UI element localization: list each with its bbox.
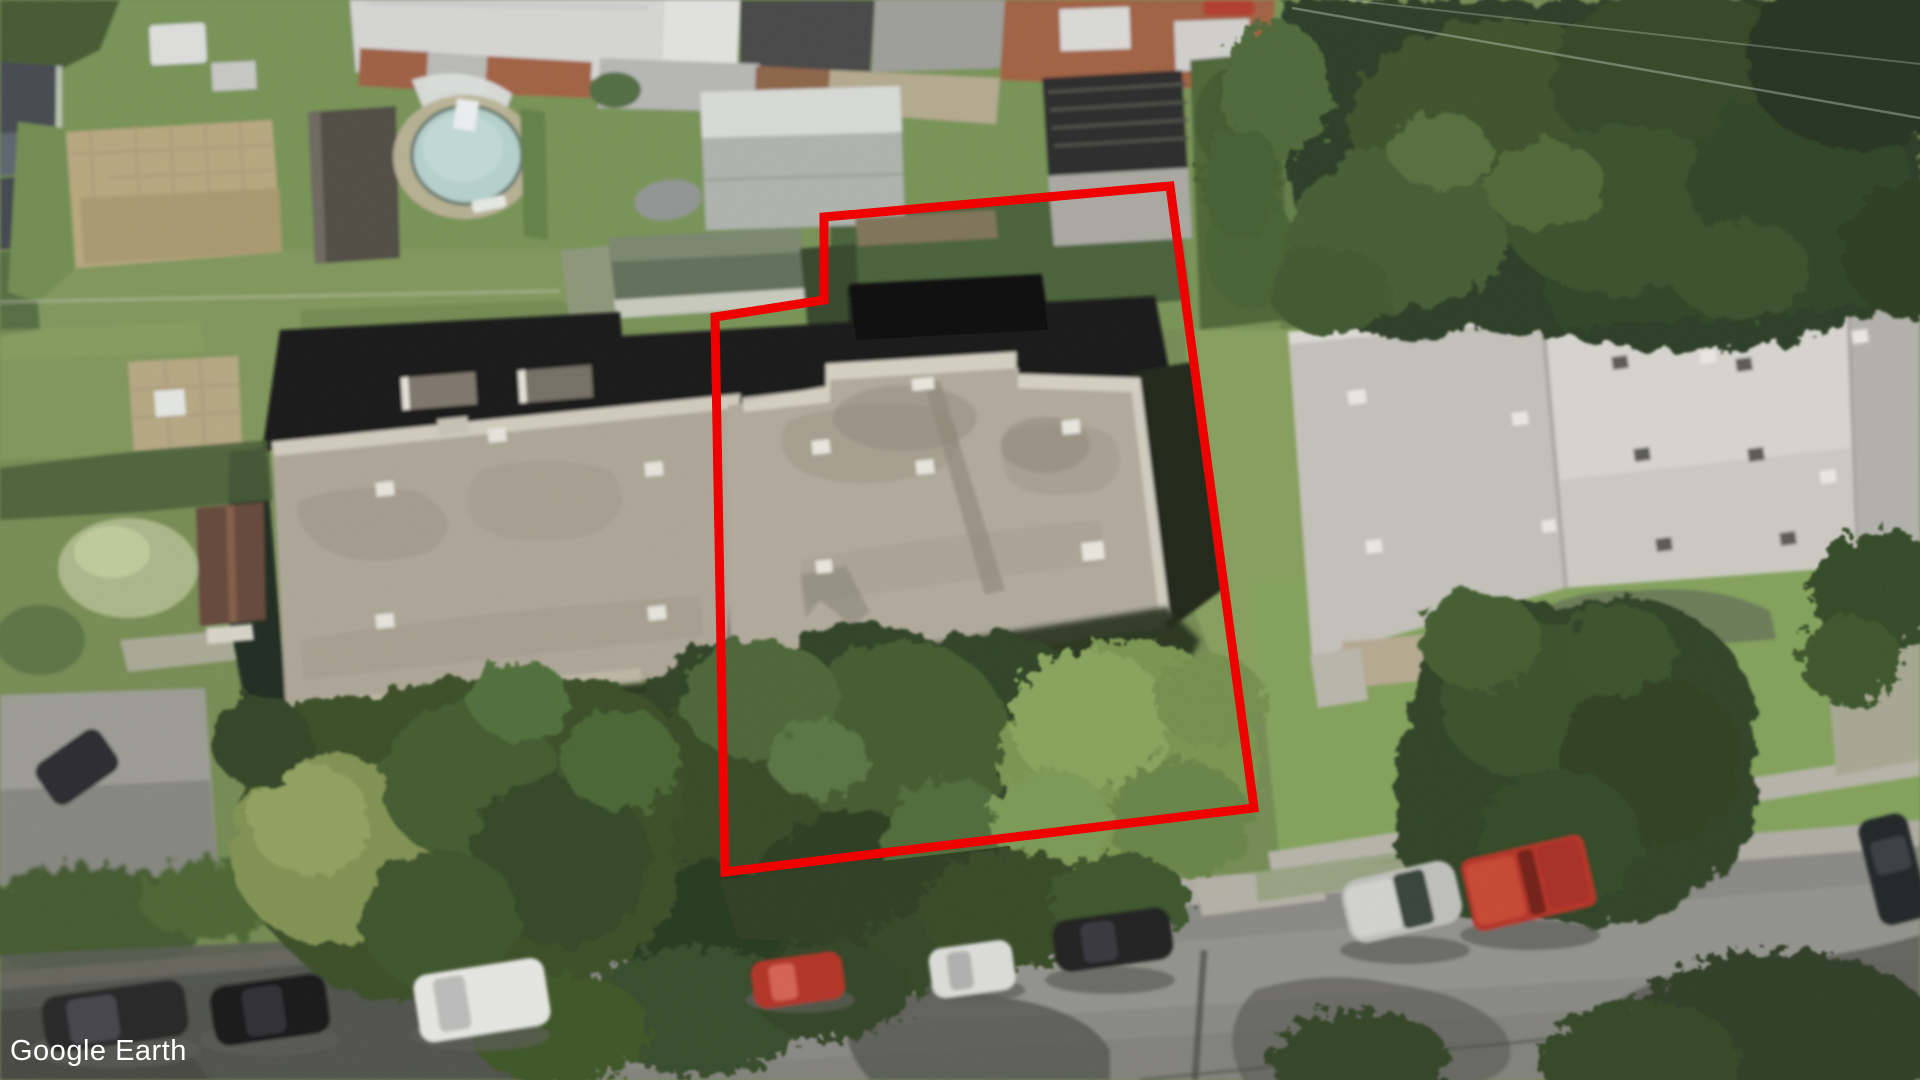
svg-text:Google Earth: Google Earth bbox=[10, 1035, 187, 1067]
